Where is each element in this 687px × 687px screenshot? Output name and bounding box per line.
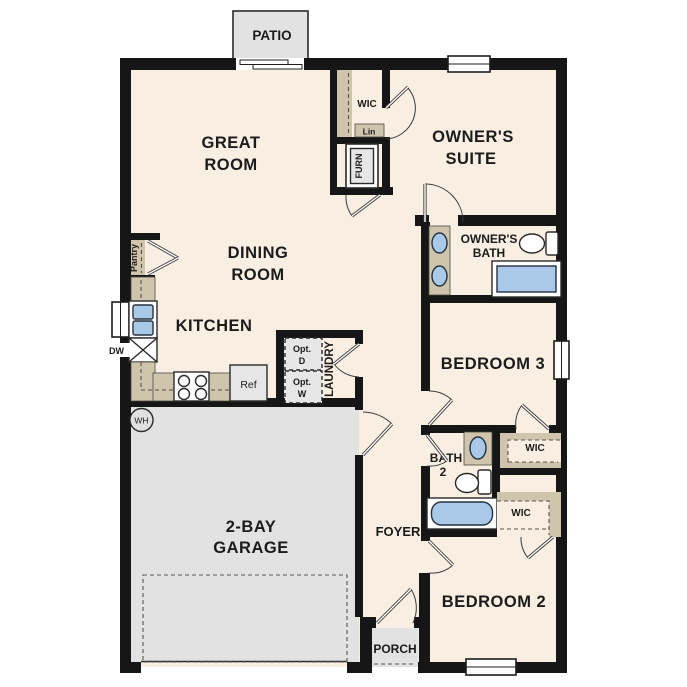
great-room-label: ROOM xyxy=(204,156,257,174)
opt-d-label: D xyxy=(299,356,306,366)
pantry: Pantry xyxy=(129,240,145,275)
bedroom3-wic: WIC xyxy=(500,433,561,468)
kitchen-counter xyxy=(131,277,155,302)
water-heater-label: WH xyxy=(134,416,148,426)
vanity-sink-icon xyxy=(470,437,486,459)
bedroom3-window xyxy=(554,341,569,379)
great-room-label: GREAT xyxy=(201,134,260,152)
bedroom3-label: BEDROOM 3 xyxy=(441,355,545,373)
bedroom2-window xyxy=(466,659,516,675)
optional-dryer: Opt. D xyxy=(285,338,322,370)
dishwasher-label: DW xyxy=(109,346,124,356)
furnace-closet: FURN xyxy=(346,144,378,188)
owners-bath-toilet-icon xyxy=(520,232,559,255)
laundry: Opt. D Opt. W LAUNDRY xyxy=(285,338,336,403)
owners-suite-label: OWNER'S xyxy=(432,128,514,146)
range-icon xyxy=(174,372,209,401)
patio: PATIO xyxy=(233,11,308,59)
vanity-sink-icon xyxy=(432,266,447,286)
patio-sliding-door xyxy=(236,58,304,70)
owners-bath-label: OWNER'S xyxy=(461,232,518,246)
laundry-label: LAUNDRY xyxy=(324,341,336,397)
owners-bath-label: BATH xyxy=(473,246,505,260)
dishwasher-icon: DW xyxy=(103,338,157,362)
pantry-label: Pantry xyxy=(129,244,139,272)
floor-plan: PATIO PORCH xyxy=(0,0,687,687)
owners-wic-label: WIC xyxy=(357,99,376,110)
porch-label: PORCH xyxy=(373,642,416,656)
opt-w-label: W xyxy=(298,389,307,399)
bedroom2-label: BEDROOM 2 xyxy=(442,593,546,611)
bedroom2-wic: WIC xyxy=(497,492,561,537)
foyer-label: FOYER xyxy=(376,524,421,539)
kitchen-label: KITCHEN xyxy=(176,317,253,335)
owners-bath: OWNER'S BATH xyxy=(429,226,561,297)
refrigerator-icon: Ref xyxy=(230,365,267,401)
garage-label: GARAGE xyxy=(213,539,288,557)
owners-suite-label: SUITE xyxy=(445,150,496,168)
owners-suite-window xyxy=(448,56,490,72)
optional-washer: Opt. W xyxy=(285,371,322,403)
refrigerator-label: Ref xyxy=(240,379,256,391)
dining-room-label: DINING xyxy=(228,244,289,262)
porch: PORCH xyxy=(372,628,418,667)
opt-w-label: Opt. xyxy=(293,377,311,387)
furnace-label: FURN xyxy=(354,154,364,179)
kitchen-counter xyxy=(131,362,155,401)
patio-label: PATIO xyxy=(252,28,291,43)
bath2-label: 2 xyxy=(440,465,447,479)
kitchen-window xyxy=(112,302,129,337)
bedroom3-wic-label: WIC xyxy=(525,443,544,454)
floor-plan-canvas: PATIO PORCH xyxy=(0,0,687,687)
kitchen-sink-icon xyxy=(129,301,157,338)
garage-label: 2-BAY xyxy=(226,518,277,536)
linen-closet: Lin xyxy=(355,124,384,137)
owners-bath-shower xyxy=(492,261,561,297)
bedroom2-wic-label: WIC xyxy=(511,508,530,519)
vanity-sink-icon xyxy=(432,233,447,253)
linen-label: Lin xyxy=(363,127,376,137)
water-heater-icon: WH xyxy=(130,409,153,432)
opt-d-label: Opt. xyxy=(293,344,311,354)
dining-room-label: ROOM xyxy=(231,266,284,284)
bath2-tub-icon xyxy=(427,498,497,529)
